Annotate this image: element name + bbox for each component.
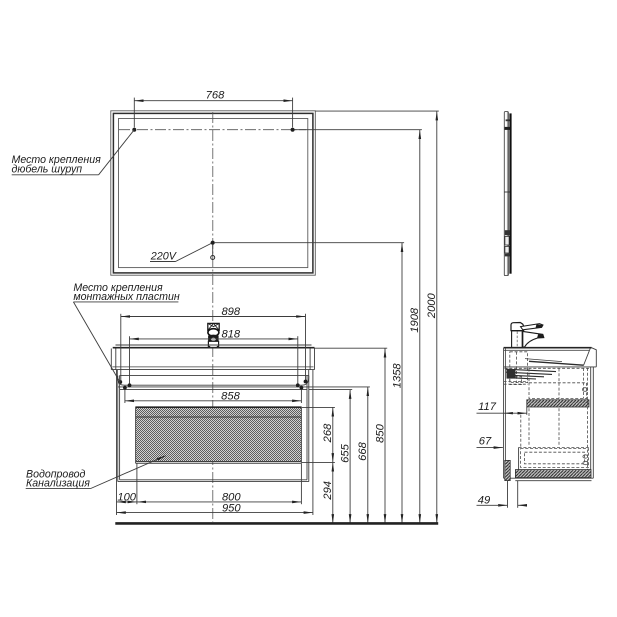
svg-text:1908: 1908 (409, 307, 421, 333)
svg-text:850: 850 (374, 423, 386, 442)
svg-text:655: 655 (340, 443, 352, 462)
svg-text:монтажных пластин: монтажных пластин (73, 291, 179, 303)
svg-text:220V: 220V (150, 250, 178, 262)
svg-text:67: 67 (479, 435, 492, 447)
svg-text:1358: 1358 (391, 363, 403, 389)
svg-text:768: 768 (206, 90, 225, 102)
svg-text:49: 49 (478, 494, 490, 506)
svg-text:117: 117 (478, 401, 497, 413)
svg-text:950: 950 (222, 502, 241, 514)
svg-text:268: 268 (322, 423, 334, 443)
svg-text:294: 294 (322, 481, 334, 501)
svg-text:Канализация: Канализация (26, 477, 90, 489)
svg-text:858: 858 (221, 391, 240, 403)
svg-text:818: 818 (221, 329, 240, 341)
svg-text:дюбель шуруп: дюбель шуруп (12, 164, 83, 176)
svg-text:2000: 2000 (426, 292, 438, 319)
svg-text:100: 100 (117, 492, 136, 504)
svg-text:898: 898 (221, 306, 240, 318)
svg-text:668: 668 (357, 441, 369, 460)
